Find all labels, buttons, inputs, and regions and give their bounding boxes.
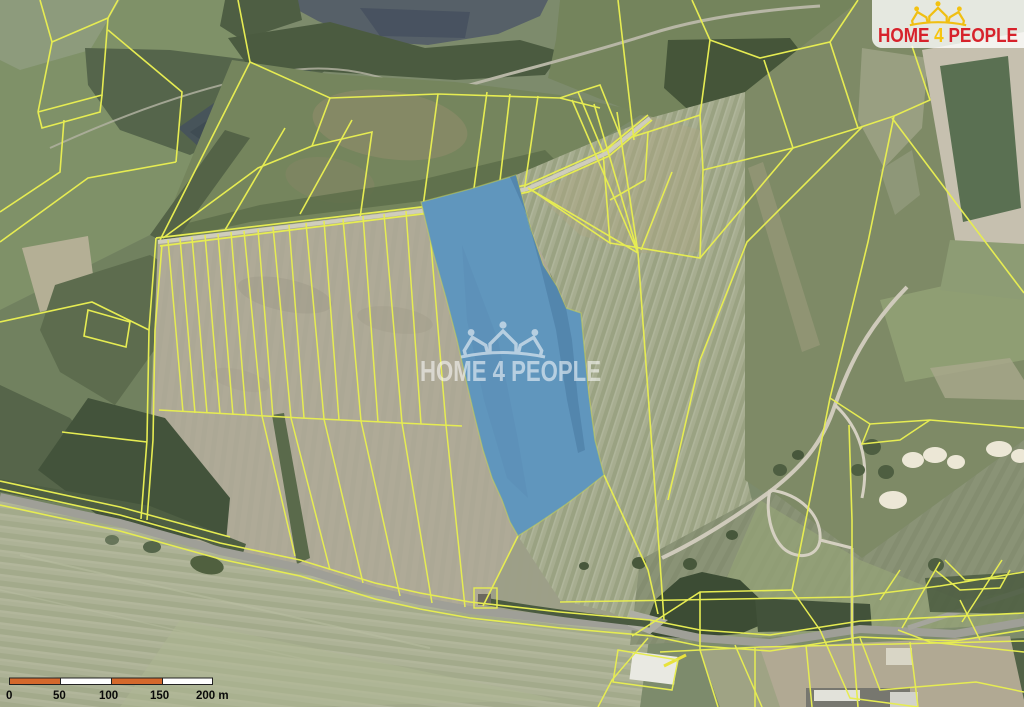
svg-text:150: 150 — [150, 690, 169, 702]
svg-text:200 m: 200 m — [196, 690, 229, 702]
svg-text:100: 100 — [99, 690, 118, 702]
svg-text:HOME 4 PEOPLE: HOME 4 PEOPLE — [420, 356, 601, 388]
svg-text:0: 0 — [6, 690, 12, 702]
svg-text:HOME 4 PEOPLE: HOME 4 PEOPLE — [878, 25, 1018, 47]
svg-text:50: 50 — [53, 690, 66, 702]
